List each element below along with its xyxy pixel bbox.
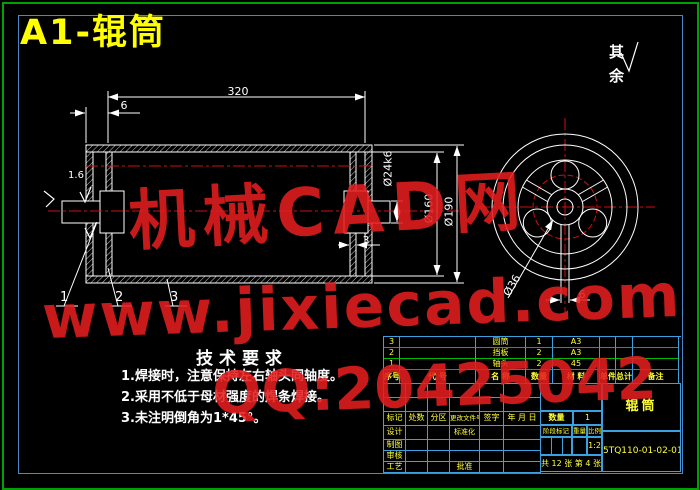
dim-plate-thickness: 3 — [358, 234, 374, 247]
bom-cell — [616, 359, 633, 370]
tb-header: 年 月 日 — [504, 412, 541, 426]
bom-cell — [600, 359, 616, 370]
bom-cell — [400, 348, 476, 359]
tb-role: 审核 — [384, 451, 406, 462]
page-title: A1-辊筒 — [20, 4, 166, 55]
bom-cell — [616, 337, 633, 348]
tb-scale-label: 比例 — [587, 425, 602, 437]
bom-cell: 2 — [384, 348, 400, 359]
bom-cell: 1 — [384, 359, 400, 370]
bom-header: 单件 — [600, 370, 616, 384]
tb-header: 签字 — [480, 412, 504, 426]
tb-role: 工艺 — [384, 462, 406, 473]
tb-role: 制图 — [384, 440, 406, 451]
bom-header: 序号 — [384, 370, 400, 384]
bom-cell: 1 — [526, 337, 553, 348]
bom-header: 材 料 — [553, 370, 600, 384]
tb-header: 更改文件号 — [450, 412, 480, 426]
tb-sheet-info: 共 12 张 第 4 张 — [540, 455, 602, 472]
bom-cell — [633, 348, 679, 359]
tech-requirement-item: 2.采用不低于母材强度的焊条焊接。 — [121, 387, 421, 408]
tb-stage-label: 阶段标记 — [540, 425, 572, 437]
dim-outer-dia: Ø190 — [443, 187, 456, 237]
dim-length: 320 — [216, 85, 260, 98]
bom-header: 名 称 — [476, 370, 526, 384]
tb-quantity-value: 1 — [573, 411, 602, 425]
bom-cell — [616, 348, 633, 359]
bom-cell — [633, 337, 679, 348]
bom-header: 数量 — [526, 370, 553, 384]
bom-header: 备注 — [633, 370, 679, 384]
roughness-icons — [44, 42, 638, 238]
bom-cell: A3 — [553, 337, 600, 348]
bom-cell — [600, 337, 616, 348]
tech-requirement-item: 1.焊接时，注意保持左右轴头同轴度。 — [121, 366, 421, 387]
tb-scale-value: 1:2 — [587, 437, 602, 455]
balloon-2: 2 — [115, 290, 123, 305]
balloon-3: 3 — [170, 290, 178, 305]
surplus-note: 其余 — [606, 44, 627, 92]
dim-inner-dia: Ø160 — [423, 184, 436, 234]
tb-header: 标记 — [384, 412, 406, 426]
bom-cell: 圆筒 — [476, 337, 526, 348]
bom-cell — [633, 359, 679, 370]
bom-cell — [400, 337, 476, 348]
tb-header: 分区 — [428, 412, 450, 426]
tb-header: 处数 — [406, 412, 428, 426]
bom-header: 代 号 — [400, 370, 476, 384]
parts-list-table: 3 圆筒 1 A3 2 挡板 2 A3 1 轴头 2 45 序号 代 号 名 称… — [383, 336, 681, 384]
tech-requirement-item: 3.未注明倒角为1*45°。 — [121, 408, 421, 429]
bom-cell: 挡板 — [476, 348, 526, 359]
bom-cell: 45 — [553, 359, 600, 370]
cad-drawing-sheet: A1-辊筒 其余 320 6 1.6 Ø24k6 Ø160 Ø190 3 Ø36… — [0, 0, 700, 490]
tb-stage-marks — [540, 437, 572, 455]
bom-cell: 2 — [526, 348, 553, 359]
tb-standardization: 标准化 — [450, 426, 480, 440]
tb-part-name: 辊筒 — [602, 383, 681, 431]
bom-cell — [600, 348, 616, 359]
bom-cell: 3 — [384, 337, 400, 348]
dim-shaft-dia: Ø24k6 — [382, 144, 395, 194]
title-block: 标记 处数 分区 更改文件号 签字 年 月 日 设计 标准化 制图 审核 工艺 … — [383, 383, 681, 472]
dim-spoke-width: 6 — [574, 288, 590, 301]
bom-cell: A3 — [553, 348, 600, 359]
bom-cell: 2 — [526, 359, 553, 370]
dim-roughness: 1.6 — [64, 170, 88, 181]
dim-end-offset: 6 — [116, 99, 132, 112]
tb-approval: 批准 — [450, 462, 480, 473]
tb-drawing-number: 5TQ110-01-02-01 — [602, 431, 681, 472]
bom-header: 总计 — [616, 370, 633, 384]
bom-cell — [400, 359, 476, 370]
bom-cell: 轴头 — [476, 359, 526, 370]
tb-role: 设计 — [384, 426, 406, 440]
tech-requirements-list: 1.焊接时，注意保持左右轴头同轴度。 2.采用不低于母材强度的焊条焊接。 3.未… — [121, 366, 421, 429]
roughness-icon — [44, 191, 54, 207]
balloon-1: 1 — [60, 290, 68, 305]
title-block-revision-area: 标记 处数 分区 更改文件号 签字 年 月 日 设计 标准化 制图 审核 工艺 … — [383, 383, 541, 473]
tb-quantity-label: 数量 — [540, 411, 573, 425]
tb-weight-label: 重量 — [572, 425, 587, 437]
